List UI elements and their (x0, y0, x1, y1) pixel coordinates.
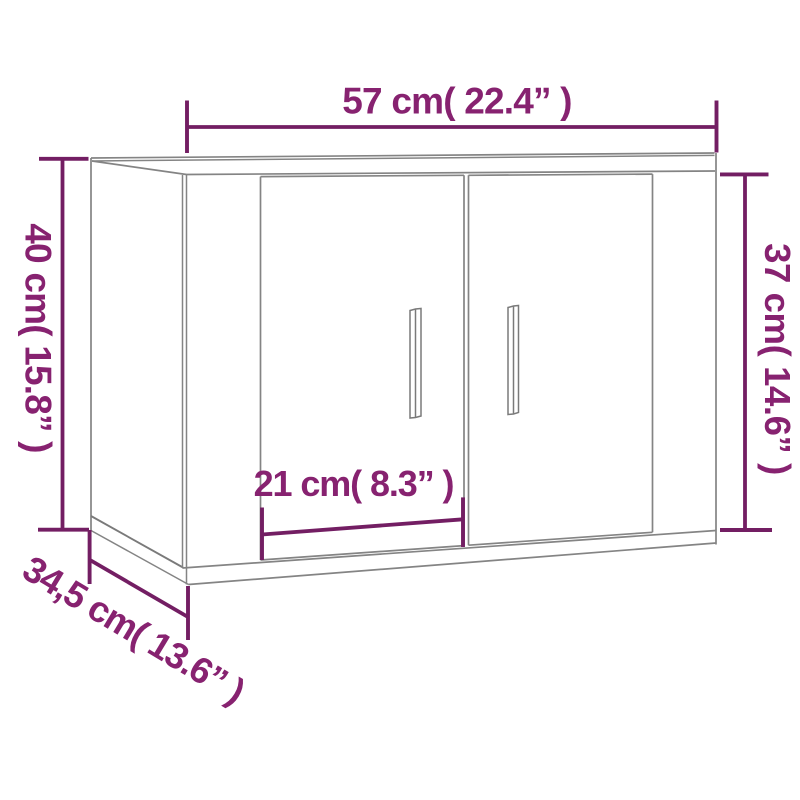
svg-text:37 cm( 14.6” ): 37 cm( 14.6” ) (757, 243, 798, 475)
svg-text:57 cm( 22.4” ): 57 cm( 22.4” ) (342, 81, 571, 122)
svg-text:21 cm( 8.3” ): 21 cm( 8.3” ) (254, 463, 454, 504)
svg-text:40 cm( 15.8” ): 40 cm( 15.8” ) (18, 223, 59, 452)
